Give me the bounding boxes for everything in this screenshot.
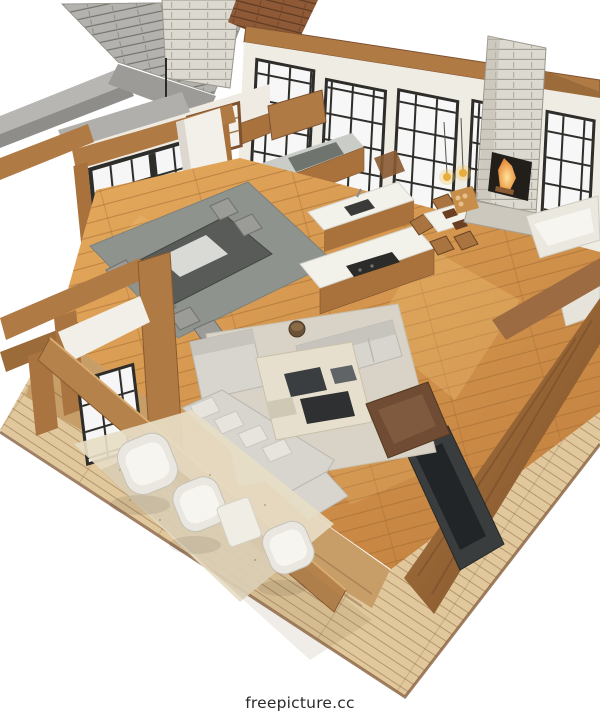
log-end bbox=[456, 196, 461, 201]
side-table-top bbox=[291, 323, 303, 331]
house-cutaway-render: freepicture.cc bbox=[0, 0, 600, 714]
stone-chimney bbox=[162, 0, 240, 88]
render-canvas: freepicture.cc bbox=[0, 0, 600, 714]
pendant-light bbox=[443, 173, 451, 181]
burner bbox=[370, 264, 373, 267]
pendant-light bbox=[459, 169, 467, 177]
burner bbox=[358, 268, 361, 271]
chair-shadow bbox=[169, 536, 221, 554]
watermark-text: freepicture.cc bbox=[245, 694, 354, 712]
chair-shadow bbox=[110, 495, 170, 515]
log-end bbox=[459, 202, 464, 207]
log-end bbox=[463, 194, 468, 199]
chair-shadow bbox=[258, 580, 306, 596]
